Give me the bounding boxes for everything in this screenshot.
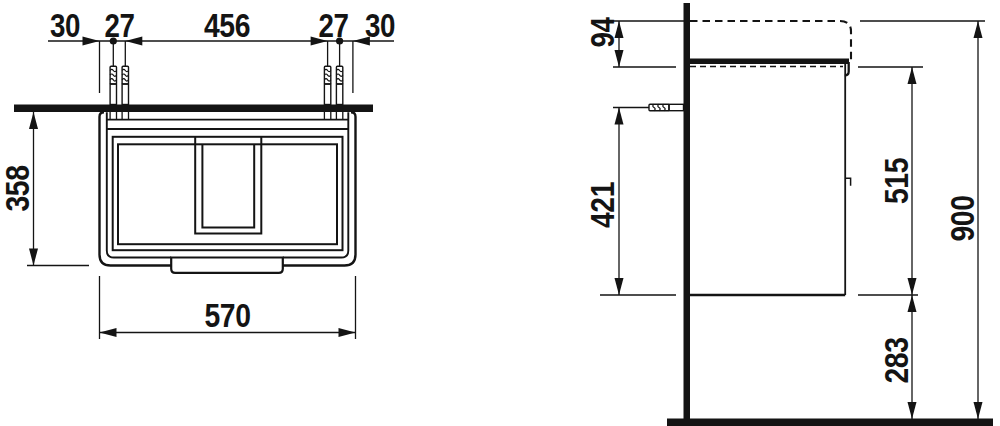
wall-plug-icon-4 — [336, 66, 342, 104]
arrow-up-icon — [29, 112, 38, 129]
floor-line — [667, 419, 993, 426]
siphon-cutout-inner — [202, 144, 254, 227]
arrow-left-icon — [100, 328, 117, 337]
arrow-down-icon — [974, 402, 983, 419]
dim-283-label: 283 — [878, 337, 915, 383]
vanity-dimension-drawing: 30 27 456 27 30 358 570 — [0, 0, 1000, 426]
wall-line — [684, 3, 691, 422]
siphon-cutout-outer — [195, 137, 261, 234]
arrow-right-icon — [83, 37, 100, 46]
dim-570-label: 570 — [205, 297, 251, 334]
arrow-down-icon — [615, 278, 624, 295]
dim-27-right-label: 27 — [319, 7, 349, 44]
dim-chain-extension-lines — [100, 41, 353, 93]
wall-line — [14, 105, 373, 113]
side-view: 94 421 515 283 900 — [584, 3, 994, 426]
dim-900-label: 900 — [944, 196, 981, 242]
wall-plug-icon-1 — [110, 66, 116, 104]
rear-rail-lines — [107, 120, 348, 129]
arrow-down-icon — [908, 278, 917, 295]
technical-drawing-canvas: 30 27 456 27 30 358 570 — [0, 0, 1000, 426]
cabinet-outline-left — [100, 112, 172, 265]
plan-view: 30 27 456 27 30 358 570 — [0, 7, 395, 340]
dim-27-left-label: 27 — [105, 7, 135, 44]
dim-30-left-label: 30 — [50, 7, 80, 44]
cabinet-top-line — [690, 59, 849, 65]
dimension-900: 900 — [944, 21, 983, 419]
bottom-recess — [171, 258, 283, 273]
arrow-up-icon — [974, 21, 983, 38]
drawer-front-inner — [118, 144, 337, 244]
wall-plug-icon-3 — [324, 66, 330, 104]
dimension-570: 570 — [100, 276, 356, 339]
wall-plug-icon-2 — [122, 66, 128, 104]
arrow-up-icon — [908, 295, 917, 312]
arrow-down-icon — [908, 402, 917, 419]
dimension-283: 283 — [878, 295, 917, 419]
dim-30-right-label: 30 — [365, 7, 395, 44]
dimension-94: 94 — [584, 17, 624, 67]
arrow-down-icon — [615, 50, 624, 67]
dim-358-label: 358 — [0, 165, 36, 211]
arrow-up-icon — [615, 108, 624, 125]
cabinet-inner-outline — [107, 112, 348, 257]
dimension-421: 421 — [584, 108, 624, 296]
arrow-up-icon — [908, 67, 917, 84]
arrow-right-icon — [339, 328, 356, 337]
dim-456-label: 456 — [204, 7, 250, 44]
dimension-358: 358 — [0, 112, 89, 266]
arrow-down-icon — [29, 249, 38, 266]
washbasin-dashed-outline — [690, 21, 851, 60]
screw-shank-lines — [110, 112, 343, 120]
dimension-515: 515 — [878, 67, 917, 295]
cabinet-outline-right — [283, 112, 356, 265]
dim-515-label: 515 — [878, 158, 915, 204]
dim-94-label: 94 — [584, 17, 621, 48]
dim-421-label: 421 — [584, 182, 621, 228]
wall-anchor-icon — [649, 104, 684, 110]
